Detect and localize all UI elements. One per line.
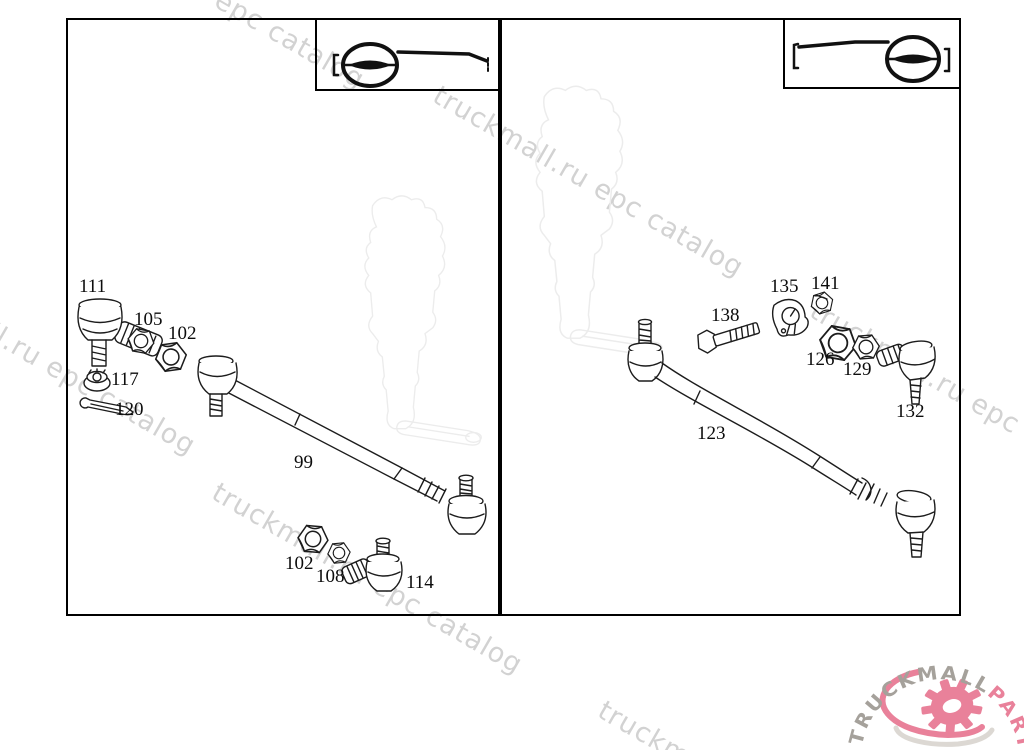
part-number-label[interactable]: 135 [770, 277, 799, 297]
part-number-label[interactable]: 114 [406, 573, 434, 593]
part-number-label[interactable]: 129 [843, 360, 872, 380]
part-number-label[interactable]: 99 [294, 453, 313, 473]
part-number-label[interactable]: 117 [111, 370, 139, 390]
part-number-label[interactable]: 126 [806, 350, 835, 370]
part-number-label[interactable]: 141 [811, 274, 840, 294]
callout-layer: 11110510211712099102108114 1351411381261… [0, 0, 1024, 750]
part-number-label[interactable]: 123 [697, 424, 726, 444]
part-number-label[interactable]: 105 [134, 310, 163, 330]
truckmall-parts-logo: TRUCKMALLPARTS [840, 640, 1024, 750]
part-number-label[interactable]: 102 [285, 554, 314, 574]
part-number-label[interactable]: 120 [115, 400, 144, 420]
part-number-label[interactable]: 138 [711, 306, 740, 326]
part-number-label[interactable]: 102 [168, 324, 197, 344]
part-number-label[interactable]: 132 [896, 402, 925, 422]
part-number-label[interactable]: 111 [79, 277, 106, 297]
part-number-label[interactable]: 108 [316, 567, 345, 587]
page-canvas: truckmall.ru epc catalogtruckmall.ru epc… [0, 0, 1024, 750]
